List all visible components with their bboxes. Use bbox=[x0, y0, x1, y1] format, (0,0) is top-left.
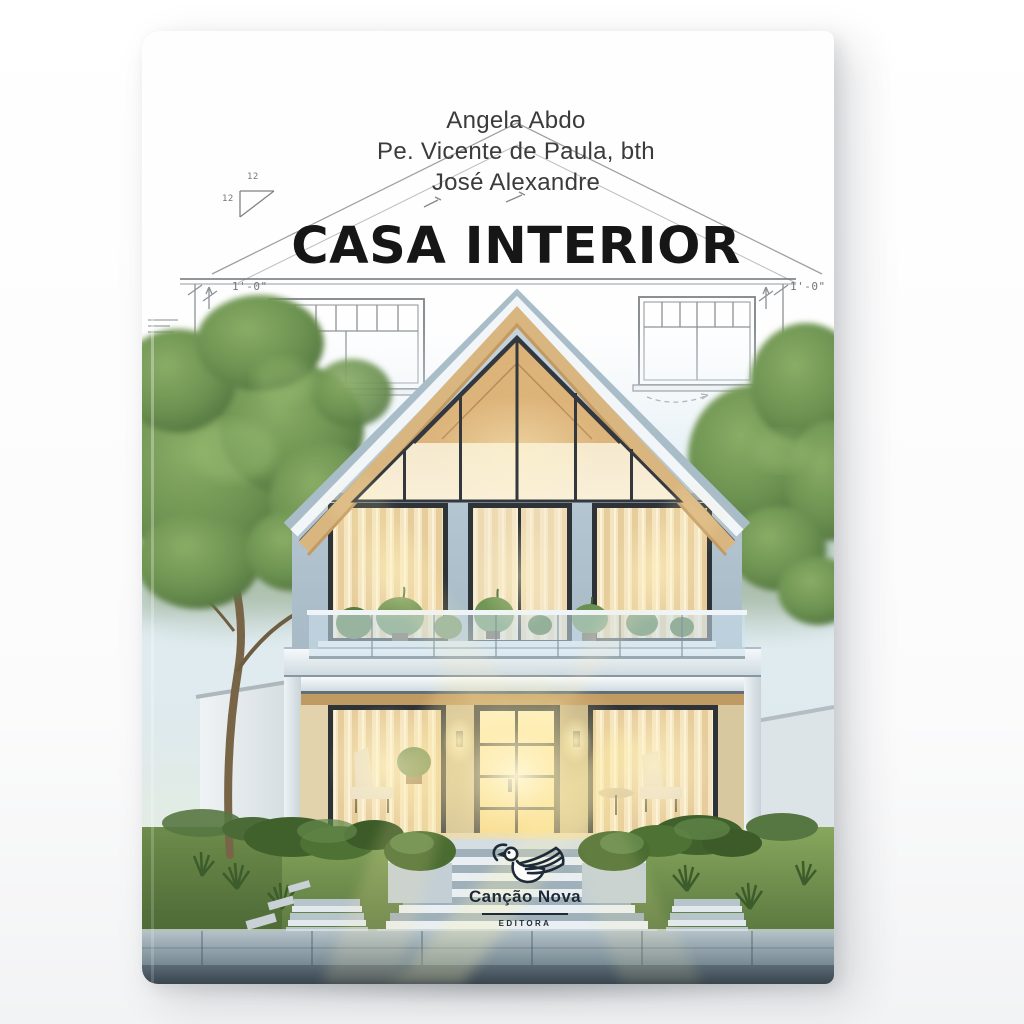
blueprint-slope-label-top: 12 bbox=[247, 172, 259, 182]
author-block: Angela Abdo Pe. Vicente de Paula, bth Jo… bbox=[198, 105, 834, 198]
publisher-rule bbox=[482, 913, 568, 915]
book-title: CASA INTERIOR bbox=[198, 219, 834, 275]
dove-in-hand-icon bbox=[484, 839, 566, 885]
book-cover: Angela Abdo Pe. Vicente de Paula, bth Jo… bbox=[142, 31, 834, 984]
publisher-name: Canção Nova bbox=[216, 887, 834, 907]
blueprint-slope-label-side: 12 bbox=[222, 194, 234, 204]
blueprint-dimension-label-right: 1'-0" bbox=[790, 280, 826, 293]
publisher-imprint: EDITORA bbox=[216, 919, 834, 928]
author-line: Angela Abdo bbox=[198, 105, 834, 136]
author-line: José Alexandre bbox=[198, 167, 834, 198]
page-background: Angela Abdo Pe. Vicente de Paula, bth Jo… bbox=[0, 0, 1024, 1024]
blueprint-dimension-label-left: 1'-0" bbox=[232, 280, 268, 293]
author-line: Pe. Vicente de Paula, bth bbox=[198, 136, 834, 167]
publisher-logo: Canção Nova EDITORA bbox=[216, 839, 834, 928]
